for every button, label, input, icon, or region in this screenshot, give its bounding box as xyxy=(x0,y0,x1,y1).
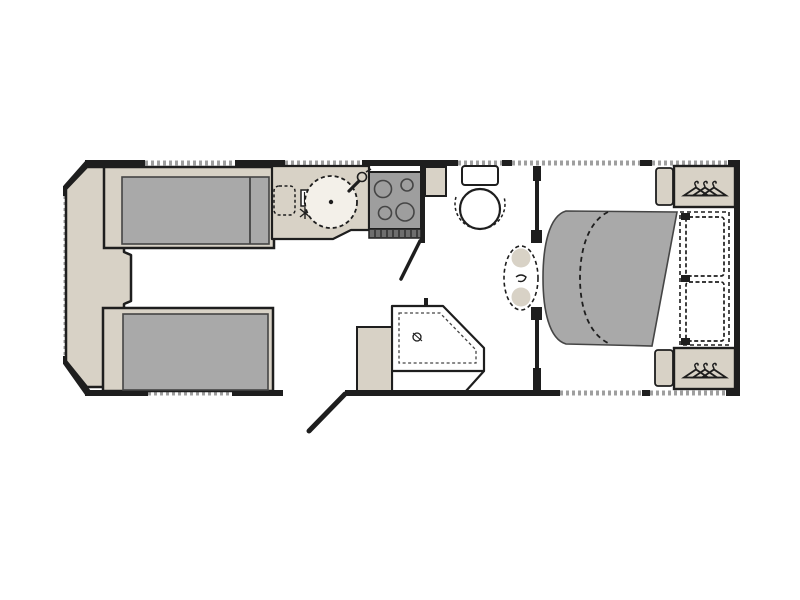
sofa-top xyxy=(104,167,274,248)
wardrobe xyxy=(674,166,735,207)
floorplan xyxy=(0,0,800,600)
sofa-bottom xyxy=(103,308,273,391)
sink-icon xyxy=(305,176,357,228)
shower-icon xyxy=(392,298,484,391)
toilet-icon xyxy=(455,166,505,229)
pillow xyxy=(686,282,724,341)
island-bed xyxy=(543,211,677,346)
bedside-cabinet xyxy=(655,350,673,386)
window xyxy=(512,160,640,167)
wardrobe xyxy=(674,348,735,389)
entrance-door xyxy=(309,394,345,431)
floorplan-page xyxy=(0,0,800,600)
washroom-door xyxy=(401,241,420,279)
hob-icon xyxy=(369,172,421,229)
bedside-cabinet xyxy=(656,168,673,205)
window xyxy=(560,390,642,397)
grill-vent xyxy=(369,229,421,238)
kitchen-cupboard xyxy=(425,167,446,196)
pillow xyxy=(686,217,724,276)
window xyxy=(145,160,235,167)
window xyxy=(650,390,726,397)
bathroom-cabinet xyxy=(357,327,392,391)
washbasin-icon xyxy=(504,246,538,310)
